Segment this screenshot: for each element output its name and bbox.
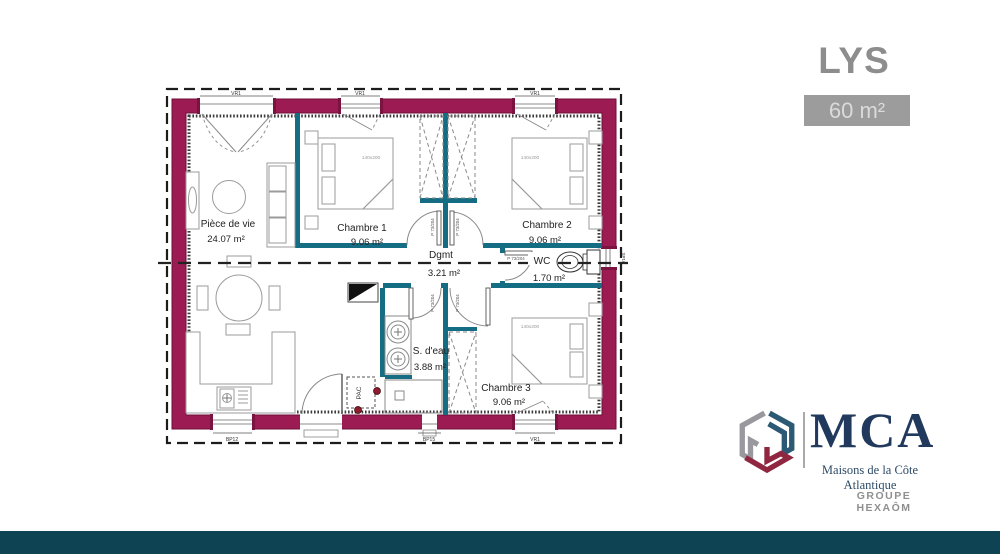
door-chambre2 bbox=[450, 211, 454, 245]
window-entrance-top bbox=[197, 96, 276, 114]
door-label-chambre3: P 73/204 bbox=[455, 294, 460, 312]
room-label-chambre1: Chambre 1 bbox=[337, 223, 387, 234]
brand-group: GROUPE HEXAÔM bbox=[836, 490, 932, 514]
room-label-salle-eau: S. d'eau bbox=[413, 346, 449, 357]
door-label-salle-eau: P 73/204 bbox=[430, 294, 435, 312]
window-kitchen bbox=[210, 414, 255, 433]
bathroom-vanity bbox=[385, 316, 411, 374]
mca-cube-logo bbox=[734, 407, 800, 477]
door-label-chambre1: P 73/204 bbox=[430, 218, 435, 236]
room-area-chambre3: 9.06 m² bbox=[493, 397, 525, 408]
window-chambre1 bbox=[338, 96, 383, 130]
room-label-chambre2: Chambre 2 bbox=[522, 220, 572, 231]
opening-label-vr-entrance: VR1 bbox=[231, 91, 241, 97]
pac-label: PAC bbox=[356, 386, 363, 399]
room-area-salle-eau: 3.88 m² bbox=[414, 362, 446, 373]
room-label-piece-de-vie: Pièce de vie bbox=[201, 219, 256, 230]
room-area-chambre2: 9.06 m² bbox=[529, 235, 561, 246]
opening-label-vr-chambre2: VR1 bbox=[530, 91, 540, 97]
window-wc-right bbox=[601, 246, 617, 270]
door-chambre1 bbox=[437, 211, 441, 245]
door-wc bbox=[505, 251, 532, 255]
bed-size-chambre3: 140x200 bbox=[521, 324, 540, 330]
model-title: LYS bbox=[798, 40, 910, 82]
opening-label-sp10: SP10 bbox=[621, 252, 626, 264]
opening-label-bp15: BP15 bbox=[423, 437, 435, 443]
bed-chambre2 bbox=[512, 131, 602, 229]
window-chambre2 bbox=[512, 96, 558, 130]
room-label-dgmt: Dgmt bbox=[429, 250, 453, 261]
room-area-piece-de-vie: 24.07 m² bbox=[207, 234, 245, 245]
brand-name: MCA bbox=[810, 402, 930, 458]
kitchen-counter bbox=[186, 332, 295, 413]
bed-size-chambre2: 140x200 bbox=[521, 155, 540, 161]
entrance-double-door bbox=[202, 114, 272, 152]
door-chambre3 bbox=[486, 288, 490, 325]
pac-unit: PAC bbox=[347, 377, 381, 414]
bed-size-chambre1: 140x200 bbox=[362, 155, 381, 161]
door-salle-eau bbox=[409, 288, 413, 319]
bed-chambre1 bbox=[305, 131, 393, 229]
page: PAC Pièce de vie 24.07 m² Chambre 1 9.06… bbox=[0, 0, 1000, 554]
room-label-chambre3: Chambre 3 bbox=[481, 383, 531, 394]
electrical-panel bbox=[348, 283, 378, 302]
footer-bar bbox=[0, 531, 1000, 554]
dining-table bbox=[197, 256, 280, 335]
room-label-wc: WC bbox=[534, 256, 551, 267]
area-badge: 60 m² bbox=[804, 95, 910, 126]
opening-label-vr-chambre1: VR1 bbox=[355, 91, 365, 97]
room-area-chambre1: 9.06 m² bbox=[351, 237, 383, 248]
logo-separator bbox=[803, 412, 805, 468]
door-label-wc: P 73/204 bbox=[507, 256, 525, 261]
door-main-entrance-bottom bbox=[300, 374, 342, 437]
opening-label-bp12: BP12 bbox=[226, 437, 238, 443]
shower bbox=[385, 380, 442, 413]
room-area-dgmt: 3.21 m² bbox=[428, 268, 460, 279]
interior-doors bbox=[407, 211, 532, 326]
opening-label-vr-chambre3: VR1 bbox=[530, 437, 540, 443]
room-area-wc: 1.70 m² bbox=[533, 273, 565, 284]
door-label-chambre2: P 73/204 bbox=[455, 218, 460, 236]
brand-tagline: Maisons de la Côte Atlantique bbox=[808, 463, 932, 493]
